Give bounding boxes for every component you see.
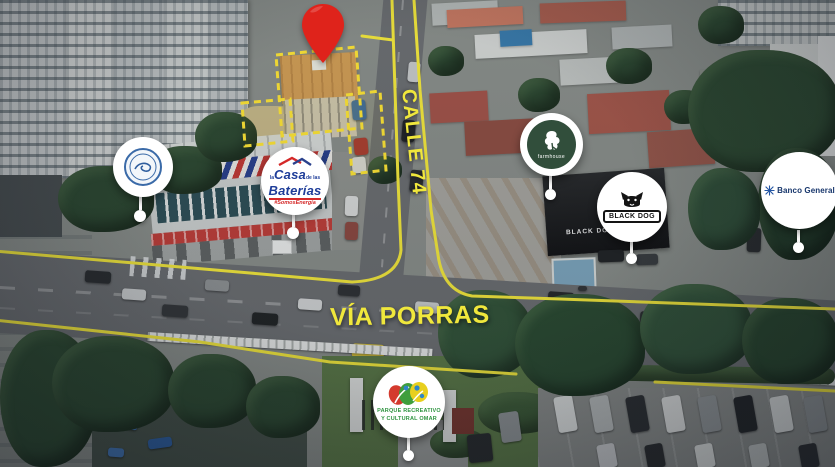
badge-dot	[545, 189, 556, 200]
location-pin-icon	[300, 2, 346, 66]
casa-name-line1: laCasade las	[270, 167, 320, 183]
black-dog-head-icon	[619, 192, 645, 209]
badge-stem	[630, 241, 633, 253]
casa-tagline: #SomosEnergía	[274, 201, 316, 207]
side-street-stub	[362, 36, 393, 40]
casa-baterias-badge: laCasade las Baterías #SomosEnergía	[261, 147, 329, 215]
badge-dot	[134, 210, 146, 222]
parque-omar-label-line2: Y CULTURAL OMAR	[381, 416, 437, 423]
farmhouse-badge: farmhouse	[520, 113, 583, 176]
badge-dot	[626, 253, 637, 264]
black-dog-badge: BLACK DOG	[597, 172, 667, 242]
badge-dot	[793, 242, 804, 253]
banco-logo-row: Banco General	[764, 185, 835, 196]
badge-dot	[403, 450, 414, 461]
aerial-map: BLACK DOG	[0, 0, 835, 467]
banco-general-label: Banco General	[777, 186, 835, 195]
property-outline-left-extension	[242, 99, 293, 146]
banco-general-badge: Banco General	[761, 152, 835, 229]
farmhouse-logo-circle: farmhouse	[527, 120, 576, 169]
farmhouse-label: farmhouse	[538, 155, 565, 160]
via-porras-south-line-east	[655, 382, 835, 391]
casa-word2: Baterías	[269, 184, 322, 200]
seal-logo-badge	[113, 137, 173, 197]
parque-omar-logo-icon	[387, 381, 431, 407]
casa-roof-logo-icon	[277, 156, 313, 166]
farmhouse-tree-icon	[540, 129, 564, 155]
badge-stem	[407, 437, 410, 450]
black-dog-label: BLACK DOG	[603, 210, 661, 223]
badge-stem	[292, 214, 295, 227]
badge-stem	[139, 196, 142, 210]
badge-dot	[287, 227, 299, 239]
casa-connector: de las	[306, 175, 320, 181]
parque-omar-badge: PARQUE RECREATIVO Y CULTURAL OMAR	[373, 366, 445, 438]
street-label-via-porras: VÍA PORRAS	[330, 301, 490, 333]
parque-omar-label-line1: PARQUE RECREATIVO	[377, 408, 441, 415]
banco-general-star-icon	[764, 185, 775, 196]
badge-stem	[549, 176, 552, 189]
calle74-east-line-and-via-porras-north-east	[414, 0, 835, 309]
badge-stem	[797, 230, 800, 242]
property-outline-parking-strip	[346, 91, 386, 174]
circular-blue-seal-logo-icon	[123, 147, 163, 187]
casa-word1: Casa	[274, 167, 306, 182]
